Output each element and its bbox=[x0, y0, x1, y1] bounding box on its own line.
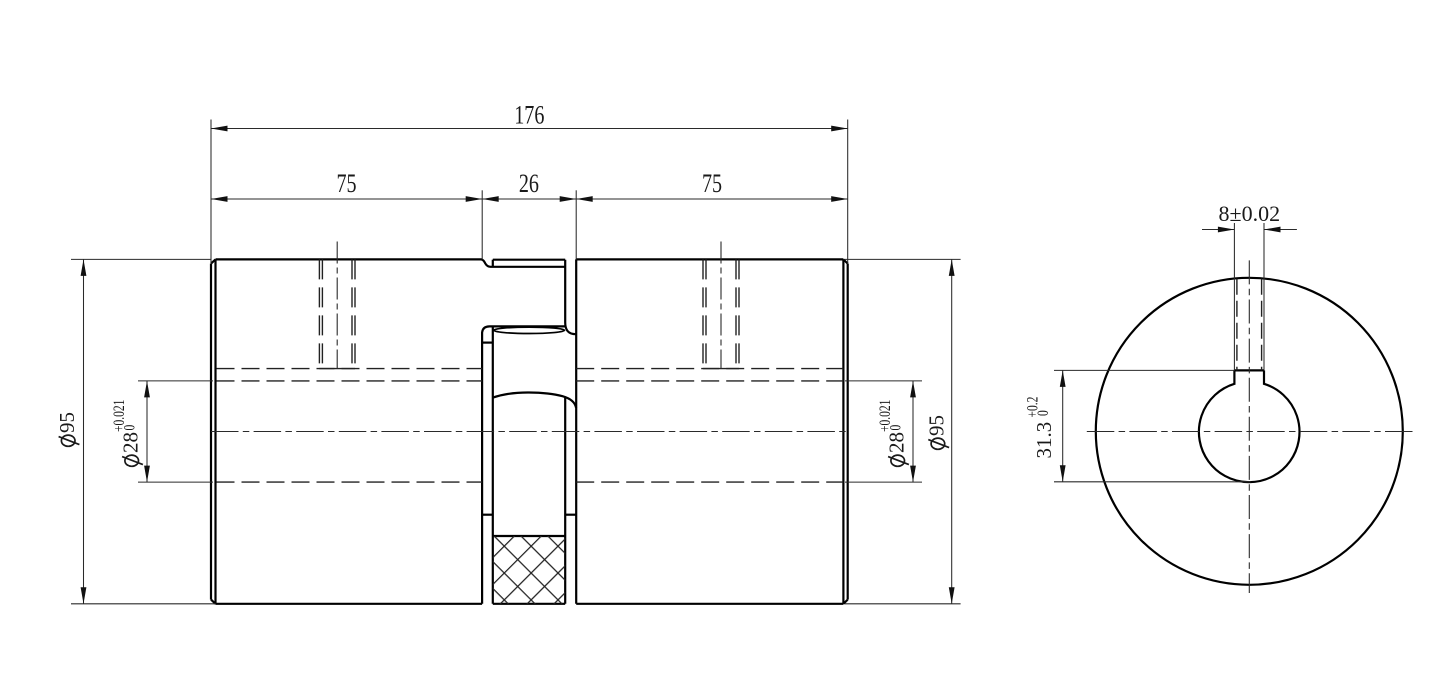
svg-text:31.3: 31.3 bbox=[1032, 422, 1056, 459]
svg-text:176: 176 bbox=[514, 101, 544, 130]
svg-text:8±0.02: 8±0.02 bbox=[1219, 201, 1281, 226]
svg-text:28: 28 bbox=[884, 432, 908, 453]
svg-text:0: 0 bbox=[1035, 410, 1052, 416]
svg-text:95: 95 bbox=[925, 415, 949, 436]
svg-text:75: 75 bbox=[336, 169, 356, 198]
svg-text:75: 75 bbox=[702, 169, 722, 198]
svg-text:28: 28 bbox=[118, 432, 142, 453]
svg-text:26: 26 bbox=[519, 169, 539, 198]
svg-text:0: 0 bbox=[122, 425, 139, 431]
svg-text:0: 0 bbox=[888, 425, 905, 431]
svg-text:95: 95 bbox=[55, 412, 79, 433]
